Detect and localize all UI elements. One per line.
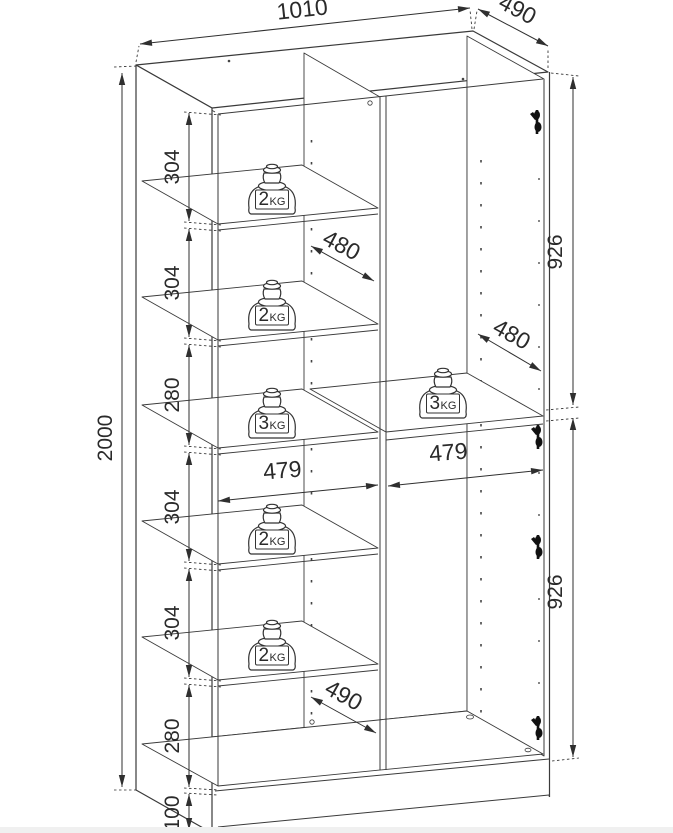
cabinet-body [136, 31, 550, 833]
top-pin-hole [228, 60, 231, 63]
weight-value: 3 [259, 413, 270, 434]
dim-inner-width-right-label: 479 [428, 437, 468, 466]
weight-value: 2 [259, 305, 270, 326]
weight-value: 2 [259, 189, 270, 210]
dim-chain-label-1: 304 [161, 149, 184, 184]
dim-chain-label-4: 304 [161, 489, 184, 524]
weight-unit: KG [270, 312, 286, 324]
weight-value: 2 [259, 645, 270, 666]
top-pin-hole [462, 78, 465, 81]
dim-inner-width-left-label: 479 [262, 455, 302, 484]
dim-overall-height: 2000 [94, 66, 137, 790]
dim-chain-label-2: 304 [161, 265, 184, 300]
dim-right-upper-label: 926 [544, 234, 567, 269]
weight-value: 3 [430, 393, 441, 414]
dim-top-depth-label: 490 [495, 0, 541, 29]
weight-unit: KG [441, 400, 457, 412]
dim-overall-height-label: 2000 [94, 415, 117, 462]
dim-chain-label-3: 280 [161, 377, 184, 412]
weight-unit: KG [270, 420, 286, 432]
dim-chain-label-7: 100 [161, 795, 184, 830]
weight-value: 2 [259, 529, 270, 550]
wardrobe-technical-drawing: 2 KG 2 KG 3 KG 2 KG [0, 0, 673, 833]
weight-unit: KG [270, 652, 286, 664]
drawing-canvas: 2 KG 2 KG 3 KG 2 KG [0, 0, 673, 833]
weight-unit: KG [270, 536, 286, 548]
dim-chain-label-6: 280 [161, 718, 184, 753]
page-bottom-edge [0, 827, 673, 833]
dim-right-lower-label: 926 [544, 574, 567, 609]
weight-unit: KG [270, 196, 286, 208]
dim-chain-label-5: 304 [161, 605, 184, 640]
dim-top-width-label: 1010 [275, 0, 329, 25]
